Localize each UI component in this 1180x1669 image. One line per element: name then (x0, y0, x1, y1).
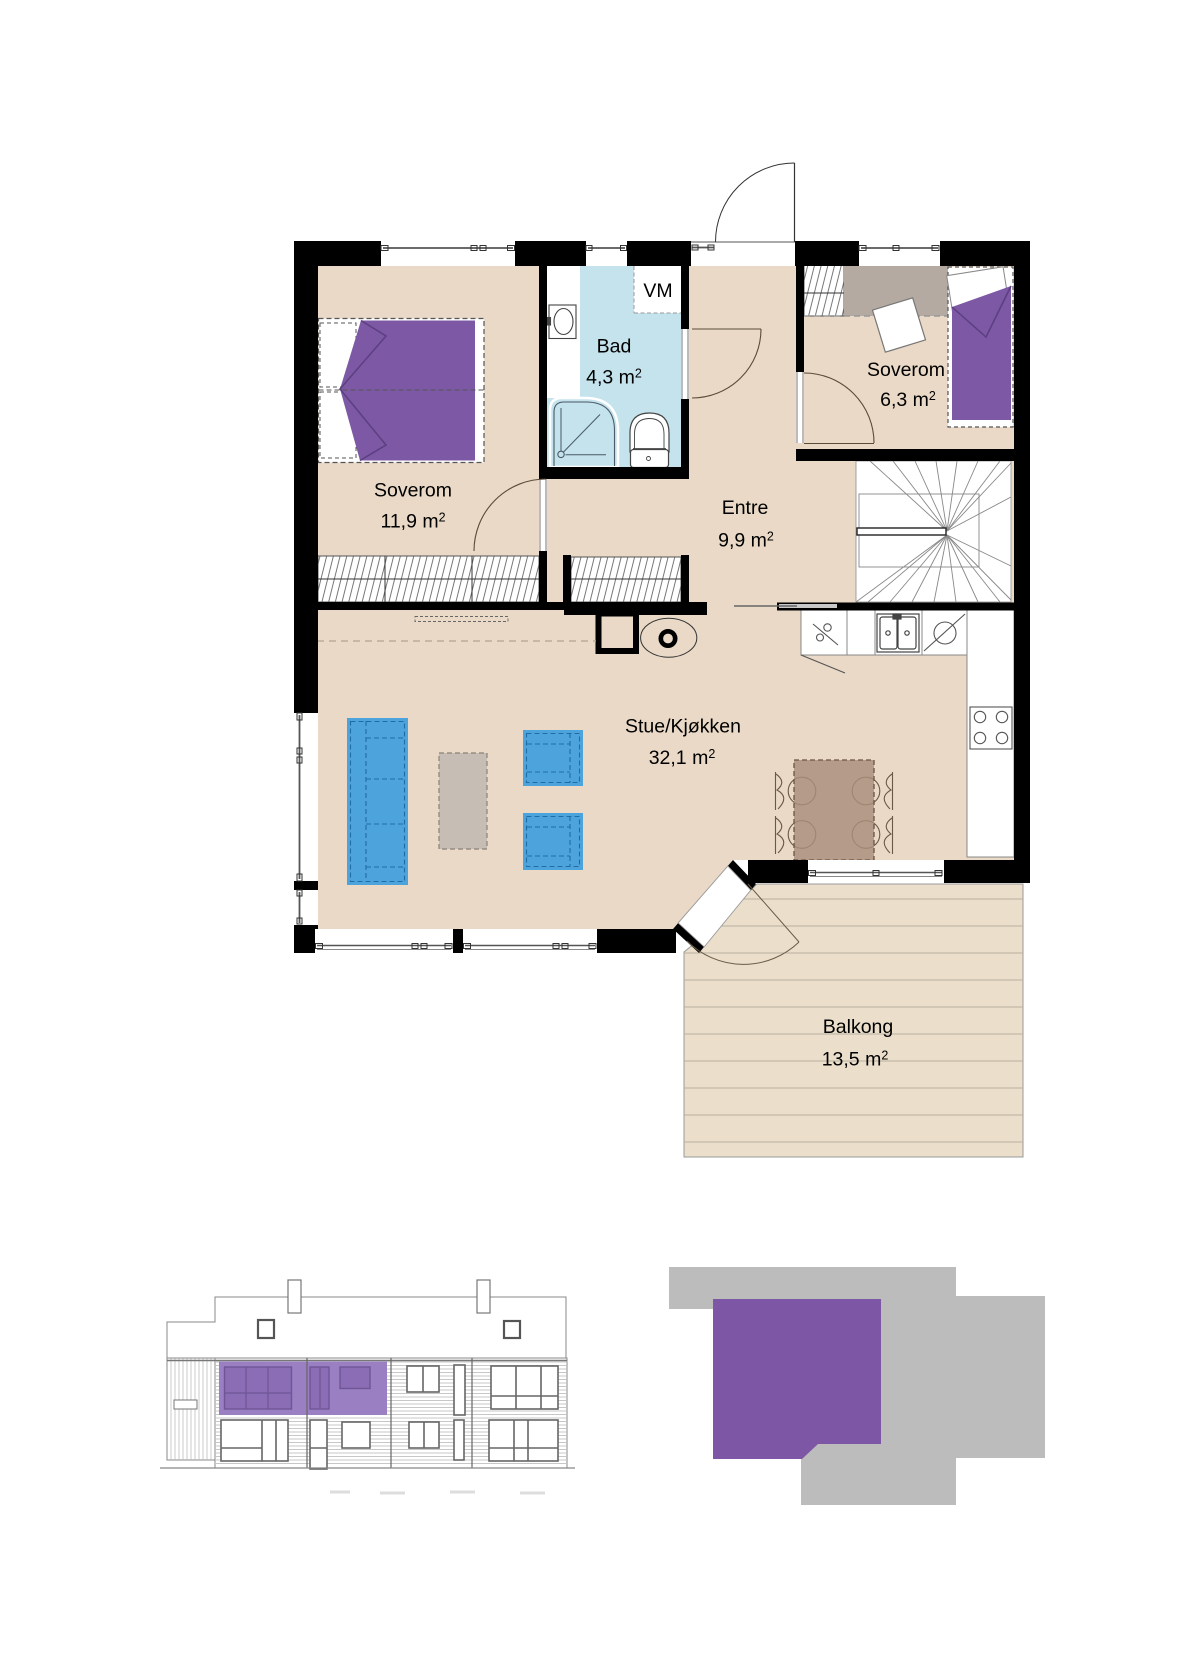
svg-text:11,9 m2: 11,9 m2 (380, 511, 445, 533)
svg-text:4,3 m2: 4,3 m2 (586, 367, 642, 389)
svg-text:32,1 m2: 32,1 m2 (649, 747, 716, 769)
svg-text:Bad: Bad (597, 336, 632, 358)
svg-text:VM: VM (643, 280, 672, 302)
svg-text:Soverom: Soverom (374, 480, 452, 502)
svg-text:Balkong: Balkong (823, 1016, 893, 1038)
svg-text:Entre: Entre (722, 497, 769, 519)
svg-text:13,5 m2: 13,5 m2 (822, 1049, 889, 1071)
svg-text:6,3 m2: 6,3 m2 (880, 389, 936, 411)
svg-text:9,9 m2: 9,9 m2 (718, 530, 774, 552)
svg-text:Stue/Kjøkken: Stue/Kjøkken (625, 716, 741, 738)
svg-text:Soverom: Soverom (867, 359, 945, 381)
